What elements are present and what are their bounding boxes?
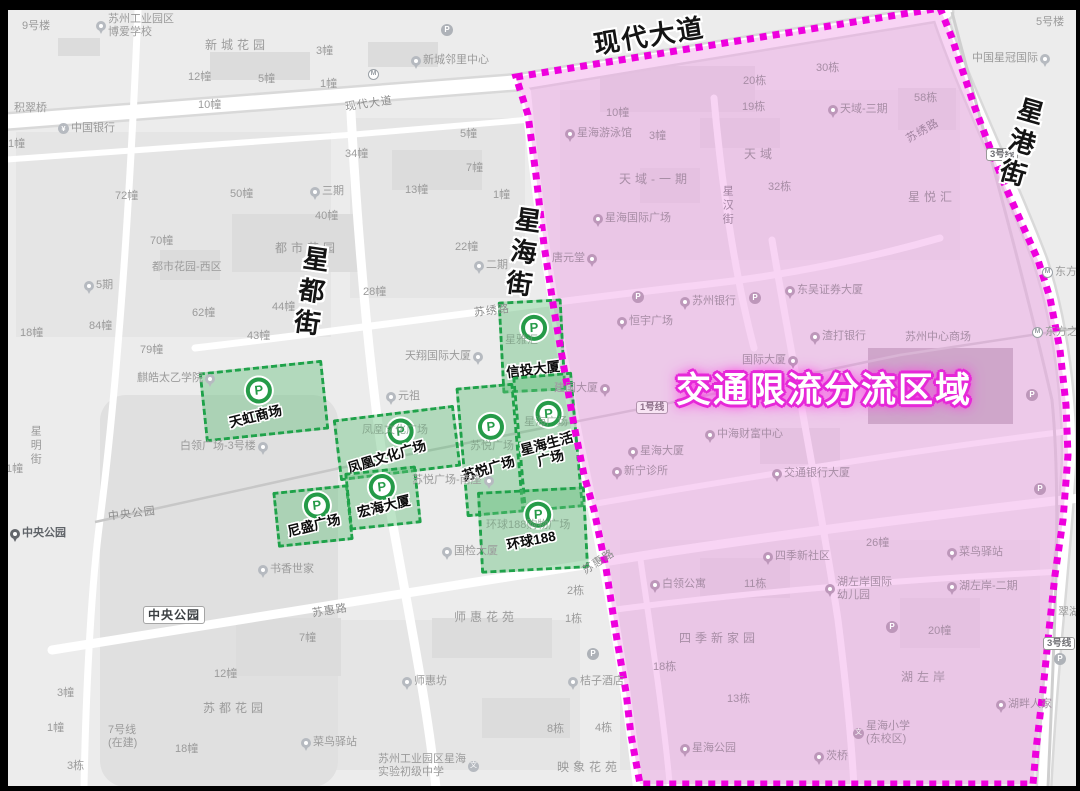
poi-pin-icon (612, 467, 622, 477)
map-label-text: 天域-一期 (619, 172, 691, 186)
map-label-text: 星海游泳馆 (577, 127, 632, 140)
map-label-text: 湖左岸 (901, 670, 949, 684)
map-label: 70幢 (150, 235, 173, 248)
poi-pin-icon (825, 584, 835, 594)
parking-pin-icon: P (632, 291, 644, 303)
poi-pin-icon (301, 738, 311, 748)
map-label: 18幢 (175, 743, 198, 756)
map-label: 星汉街 (720, 185, 733, 227)
poi-pin-icon (785, 286, 795, 296)
map-label-text: 3号线 (1047, 638, 1071, 649)
poi-pin-icon (814, 752, 824, 762)
map-label-text: 50幢 (230, 188, 253, 201)
map-label-text: 9号楼 (22, 20, 50, 33)
map-label-text: 84幢 (89, 320, 112, 333)
map-label: 1幢 (6, 463, 23, 476)
map-label: P (587, 648, 601, 660)
map-label-text: 星悦汇 (908, 190, 956, 204)
map-label-text: 7号线(在建) (108, 724, 137, 750)
map-label-text: 苏州工业园区星海实验初级中学 (378, 753, 466, 779)
map-label: 苏悦广场 (470, 440, 514, 453)
map-label-text: 星明街 (28, 425, 41, 467)
map-label: 中央公园 (10, 527, 66, 540)
map-label: 20幢 (928, 625, 951, 638)
map-label-text: 菜鸟驿站 (959, 546, 1003, 559)
map-label: 苏州银行 (680, 295, 736, 308)
map-label: 麒皓太乙学院 (137, 372, 215, 385)
poi-pin-icon (411, 56, 421, 66)
map-label: 3幢 (649, 130, 666, 143)
poi-pin-icon (617, 317, 627, 327)
map-label: 22幢 (455, 241, 478, 254)
map-label-text: 3幢 (316, 45, 333, 58)
map-label-text: 7幢 (466, 162, 483, 175)
map-label-text: 苏州中心商场 (905, 331, 971, 344)
map-label-text: 国检大厦 (454, 545, 498, 558)
parking-pin-icon: P (886, 621, 898, 633)
poi-pin-icon (568, 677, 578, 687)
map-label: 1号线 (636, 401, 668, 414)
map-label-text: 3幢 (57, 687, 74, 700)
poi-pin-icon (600, 384, 610, 394)
map-label-text: 师惠坊 (414, 675, 447, 688)
map-label-text: 渣打银行 (822, 330, 866, 343)
map-label-text: 3栋 (67, 760, 84, 773)
map-label: 桔子酒店 (568, 675, 624, 688)
map-label: 43幢 (247, 330, 270, 343)
map-label-text: 东吴证券大厦 (797, 284, 863, 297)
map-label: 1幢 (320, 78, 337, 91)
map-label: 积翠桥 (14, 102, 47, 115)
map-label: 天域-三期 (828, 103, 888, 116)
map-label-text: 中央公园 (148, 608, 200, 622)
map-label-text: 2栋 (567, 585, 584, 598)
frame-top (0, 0, 1080, 10)
map-label: 20栋 (743, 75, 766, 88)
map-label: 四季新社区 (763, 550, 830, 563)
map-label: 5幢 (258, 73, 275, 86)
map-label-text: 茨桥 (826, 750, 848, 763)
poi-pin-icon (565, 129, 575, 139)
map-label: P (1034, 483, 1048, 495)
poi-pin-icon (10, 529, 20, 539)
map-label: 中海财富中心 (705, 428, 783, 441)
map-label-text: 34幢 (345, 148, 368, 161)
map-label-text: 22幢 (455, 241, 478, 254)
bank-icon: ¥ (58, 123, 69, 134)
metro-icon: M (1032, 327, 1043, 338)
map-label: 40幢 (315, 210, 338, 223)
map-label-text: 40幢 (315, 210, 338, 223)
map-label-text: 10幢 (606, 107, 629, 120)
map-label-text: 5幢 (258, 73, 275, 86)
map-label: 5号楼 (1036, 16, 1064, 29)
map-label: 7号线(在建) (108, 724, 137, 750)
poi-pin-icon (772, 469, 782, 479)
map-label: 映象花苑 (557, 760, 621, 774)
map-label: 星海广场 (524, 416, 568, 429)
poi-pin-icon (763, 552, 773, 562)
map-label-text: 白领公寓 (662, 578, 706, 591)
map-label-text: 星海公园 (692, 742, 736, 755)
map-label: 3幢 (316, 45, 333, 58)
map-label: 四季新家园 (679, 631, 759, 645)
map-label: 星海大厦 (628, 445, 684, 458)
map-label-text: 1幢 (493, 189, 510, 202)
map-label-text: 新城邻里中心 (423, 54, 489, 67)
map-label-text: 桔子酒店 (580, 675, 624, 688)
map-label-text: 新城花园 (205, 38, 269, 52)
map-label-text: 苏悦广场-南座 (412, 474, 482, 487)
map-label: 3栋 (67, 760, 84, 773)
map-label-text: 3幢 (649, 130, 666, 143)
map-label-text: 新宁诊所 (624, 465, 668, 478)
map-label-text: 1栋 (565, 613, 582, 626)
map-label-text: 四季新家园 (679, 631, 759, 645)
map-label: 凤凰文化广场 (362, 424, 428, 437)
map-label: 2栋 (567, 585, 584, 598)
map-label: 恒宇广场 (617, 315, 673, 328)
map-label: 师惠花苑 (454, 610, 518, 624)
map-label: 白领公寓 (650, 578, 706, 591)
map-label: 茨桥 (814, 750, 848, 763)
map-label-text: 东方之门 (1045, 326, 1080, 339)
map-label-text: 星海广场 (524, 416, 568, 429)
map-label-text: 1幢 (6, 463, 23, 476)
map-label: 62幢 (192, 307, 215, 320)
map-label-text: 凤凰文化广场 (362, 424, 428, 437)
map-label-text: 72幢 (115, 190, 138, 203)
map-label-text: 26幢 (866, 537, 889, 550)
map-label: 苏悦广场-南座 (412, 474, 494, 487)
map-label: M东方之门 (1042, 266, 1080, 279)
map-label-text: 18幢 (20, 327, 43, 340)
map-label: 1幢 (47, 722, 64, 735)
map-label: 3幢 (57, 687, 74, 700)
map-label: 建国大厦 (554, 382, 610, 395)
map-label-text: 苏州工业园区博爱学校 (108, 13, 174, 39)
map-label: 星海公园 (680, 742, 736, 755)
map-label-text: 星雅汇 (505, 334, 538, 347)
map-label: 5期 (84, 279, 113, 292)
map-label-text: 环球188购物广场 (486, 519, 570, 532)
map-label: 9号楼 (22, 20, 50, 33)
school-icon: 文 (468, 761, 479, 772)
parking-pin-icon: P (587, 648, 599, 660)
map-label-text: 1幢 (320, 78, 337, 91)
map-label-text: 20栋 (743, 75, 766, 88)
map-label: 1幢 (8, 138, 25, 151)
map-label: 师惠坊 (402, 675, 447, 688)
map-label: M (368, 69, 381, 80)
map-label: 7幢 (299, 632, 316, 645)
map-label: 1栋 (565, 613, 582, 626)
poi-pin-icon (474, 261, 484, 271)
map-label: 菜鸟驿站 (947, 546, 1003, 559)
poi-pin-icon (593, 214, 603, 224)
poi-pin-icon (810, 332, 820, 342)
map-label: 4栋 (595, 722, 612, 735)
map-label: 13栋 (727, 693, 750, 706)
map-label: 元祖 (386, 390, 420, 403)
parking-pin-icon: P (749, 292, 761, 304)
map-label: 50幢 (230, 188, 253, 201)
map-label: 28幢 (363, 286, 386, 299)
map-label-text: 1幢 (47, 722, 64, 735)
map-label: 天域-一期 (619, 172, 691, 186)
map-label: 7幢 (466, 162, 483, 175)
map-label-text: 师惠花苑 (454, 610, 518, 624)
restriction-zone-title: 交通限流分流区域 (676, 362, 972, 413)
map-label-text: 恒宇广场 (629, 315, 673, 328)
map-label: P (1026, 389, 1040, 401)
map-label-text: 70幢 (150, 235, 173, 248)
map-canvas: 交通限流分流区域 P天虹商场P凤凰文化广场P信投大厦P苏悦广场P星海生活广场P尼… (0, 0, 1080, 791)
map-label: 苏州中心商场 (905, 331, 971, 344)
poi-pin-icon (473, 352, 483, 362)
map-label-text: 三期 (322, 185, 344, 198)
map-label: 三期 (310, 185, 344, 198)
map-label: 白领广场-3号楼 (180, 440, 268, 453)
parking-pin-icon: P (1026, 389, 1038, 401)
map-label-text: 11栋 (744, 578, 766, 591)
map-label: 12幢 (214, 668, 237, 681)
map-label: 72幢 (115, 190, 138, 203)
map-label-text: 10幢 (198, 99, 221, 112)
map-label-text: 四季新社区 (775, 550, 830, 563)
map-label-text: 天域 (744, 147, 776, 161)
map-label: 新城邻里中心 (411, 54, 489, 67)
map-label: 东吴证券大厦 (785, 284, 863, 297)
map-label: 18幢 (20, 327, 43, 340)
map-label: 34幢 (345, 148, 368, 161)
frame-bottom (0, 786, 1080, 791)
map-label-text: 5期 (96, 279, 113, 292)
poi-pin-icon (628, 447, 638, 457)
map-label-text: 20幢 (928, 625, 951, 638)
map-label: 国检大厦 (442, 545, 498, 558)
map-label-text: 书香世家 (270, 563, 314, 576)
map-label-text: 星汉街 (720, 185, 733, 227)
map-label: M东方之门 (1032, 326, 1080, 339)
poi-pin-icon (680, 297, 690, 307)
map-label-text: 19栋 (742, 101, 765, 114)
map-label-text: 5幢 (460, 128, 477, 141)
poi-pin-icon (705, 430, 715, 440)
map-label: P (1054, 653, 1068, 665)
metro-icon: M (1042, 267, 1053, 278)
poi-pin-icon (258, 565, 268, 575)
map-label-text: 星海大厦 (640, 445, 684, 458)
poi-pin-icon (205, 374, 215, 384)
poi-pin-icon (1040, 54, 1050, 64)
map-label-text: 中海财富中心 (717, 428, 783, 441)
parking-pin-icon: P (1034, 483, 1046, 495)
map-label-text: 32栋 (768, 181, 791, 194)
map-label: 10幢 (198, 99, 221, 112)
map-label: 都市花园-西区 (152, 261, 222, 274)
map-label: 文星海小学(东校区) (853, 720, 910, 746)
map-label-text: 湖左岸国际幼儿园 (837, 576, 892, 602)
map-label-text: 湖畔人家 (1008, 698, 1052, 711)
map-label: 苏州工业园区星海实验初级中学文 (378, 753, 479, 779)
map-label-text: 湖左岸-二期 (959, 580, 1018, 593)
map-label: 中央公园 (143, 606, 205, 624)
map-label-text: 麒皓太乙学院 (137, 372, 203, 385)
map-label: 30栋 (816, 62, 839, 75)
map-label: 交通银行大厦 (772, 467, 850, 480)
poi-pin-icon (828, 105, 838, 115)
map-label-text: 天翔国际大厦 (405, 350, 471, 363)
map-label-text: 中国星冠国际 (972, 52, 1038, 65)
map-label: ¥中国银行 (58, 122, 115, 135)
map-label-text: 30栋 (816, 62, 839, 75)
parking-pin-icon: P (1054, 653, 1066, 665)
map-label: 18栋 (653, 661, 676, 674)
map-label-text: 积翠桥 (14, 102, 47, 115)
map-label-text: 8栋 (547, 723, 564, 736)
poi-pin-icon (258, 442, 268, 452)
school-icon: 文 (853, 728, 864, 739)
map-label: 26幢 (866, 537, 889, 550)
map-label-text: 交通银行大厦 (784, 467, 850, 480)
poi-pin-icon (996, 700, 1006, 710)
map-label-text: 28幢 (363, 286, 386, 299)
map-label-text: 元祖 (398, 390, 420, 403)
poi-pin-icon (650, 580, 660, 590)
map-label: 5幢 (460, 128, 477, 141)
metro-icon: M (368, 69, 379, 80)
frame-left (0, 0, 8, 791)
map-label: 中国星冠国际 (972, 52, 1050, 65)
map-label-text: 中国银行 (71, 122, 115, 135)
map-label-text: 18幢 (175, 743, 198, 756)
map-label-text: 菜鸟驿站 (313, 736, 357, 749)
map-label-text: 白领广场-3号楼 (180, 440, 256, 453)
map-label-text: 62幢 (192, 307, 215, 320)
map-label-text: 43幢 (247, 330, 270, 343)
map-label: 唐元堂 (552, 252, 597, 265)
map-label-text: 13栋 (727, 693, 750, 706)
map-label-text: 18栋 (653, 661, 676, 674)
map-label: 新城花园 (205, 38, 269, 52)
map-label-text: 1幢 (8, 138, 25, 151)
map-label-text: 都市花园-西区 (152, 261, 222, 274)
map-label: 星悦汇 (908, 190, 956, 204)
map-label-text: 4栋 (595, 722, 612, 735)
map-label: P (886, 621, 900, 633)
map-label: 天域 (744, 147, 776, 161)
map-label: 8栋 (547, 723, 564, 736)
map-label: 苏都花园 (203, 701, 267, 715)
map-label-text: 中央公园 (22, 527, 66, 540)
poi-pin-icon (84, 281, 94, 291)
poi-pin-icon (587, 254, 597, 264)
map-label: 星海国际广场 (593, 212, 671, 225)
map-label: P (632, 291, 646, 303)
map-label: 星海游泳馆 (565, 127, 632, 140)
map-label: 苏州工业园区博爱学校 (96, 13, 174, 39)
map-label-text: 苏悦广场 (470, 440, 514, 453)
map-label: 12幢 (188, 71, 211, 84)
map-label: 13幢 (405, 184, 428, 197)
map-label: 渣打银行 (810, 330, 866, 343)
map-label-text: 7幢 (299, 632, 316, 645)
map-label-text: 天域-三期 (840, 103, 888, 116)
map-label-text: 12幢 (188, 71, 211, 84)
map-label: 天翔国际大厦 (405, 350, 483, 363)
map-label: 湖左岸 (901, 670, 949, 684)
map-label: 湖左岸国际幼儿园 (825, 576, 892, 602)
map-label-text: 星海小学(东校区) (866, 720, 910, 746)
poi-pin-icon (310, 187, 320, 197)
map-label: 星雅汇 (505, 334, 538, 347)
map-label: 1幢 (493, 189, 510, 202)
map-label: P (749, 292, 763, 304)
parking-pin-icon: P (441, 24, 453, 36)
map-label-text: 13幢 (405, 184, 428, 197)
map-label: 11栋 (744, 578, 766, 591)
map-label-text: 苏都花园 (203, 701, 267, 715)
map-label-text: 12幢 (214, 668, 237, 681)
map-screenshot: 交通限流分流区域 P天虹商场P凤凰文化广场P信投大厦P苏悦广场P星海生活广场P尼… (0, 0, 1080, 791)
map-label-text: 建国大厦 (554, 382, 598, 395)
map-label-text: 1号线 (640, 402, 664, 413)
poi-pin-icon (402, 677, 412, 687)
map-label-text: 苏州银行 (692, 295, 736, 308)
map-label: 32栋 (768, 181, 791, 194)
frame-right (1076, 0, 1080, 791)
map-label: 58栋 (914, 92, 937, 105)
poi-pin-icon (442, 547, 452, 557)
map-label: 84幢 (89, 320, 112, 333)
map-label: 书香世家 (258, 563, 314, 576)
map-label-text: 星海国际广场 (605, 212, 671, 225)
map-label: P (441, 24, 455, 36)
map-label: 10幢 (606, 107, 629, 120)
poi-pin-icon (680, 744, 690, 754)
map-label: 湖畔人家 (996, 698, 1052, 711)
map-label: 湖左岸-二期 (947, 580, 1018, 593)
poi-pin-icon (947, 582, 957, 592)
map-label: 菜鸟驿站 (301, 736, 357, 749)
map-label: 79幢 (140, 344, 163, 357)
poi-pin-icon (96, 21, 106, 31)
poi-pin-icon (386, 392, 396, 402)
map-label: 新宁诊所 (612, 465, 668, 478)
map-label-text: 58栋 (914, 92, 937, 105)
poi-pin-icon (947, 548, 957, 558)
map-label-text: 79幢 (140, 344, 163, 357)
map-label: 星明街 (28, 425, 41, 467)
poi-pin-icon (484, 476, 494, 486)
map-label: 环球188购物广场 (486, 519, 570, 532)
map-label: 3号线 (1043, 637, 1075, 650)
map-label: 19栋 (742, 101, 765, 114)
map-label-text: 映象花苑 (557, 760, 621, 774)
map-label-text: 唐元堂 (552, 252, 585, 265)
map-label-text: 5号楼 (1036, 16, 1064, 29)
